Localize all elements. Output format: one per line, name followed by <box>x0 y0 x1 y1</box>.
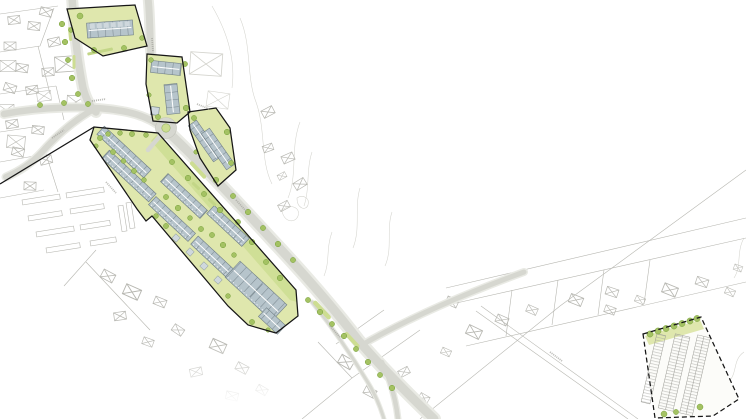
site-plan-map <box>0 0 746 419</box>
tree <box>277 275 283 281</box>
parking-bush <box>687 318 693 324</box>
tree <box>201 191 206 196</box>
tree <box>154 214 159 219</box>
tree <box>142 178 147 183</box>
street-tree <box>275 241 281 247</box>
tree <box>97 135 102 140</box>
tree <box>131 168 136 173</box>
tree <box>110 149 115 154</box>
tree <box>121 159 126 164</box>
street-tree <box>305 297 310 302</box>
tree <box>75 91 80 96</box>
tree <box>144 133 149 138</box>
tree <box>106 132 111 137</box>
tree <box>149 58 154 63</box>
tree <box>65 57 70 62</box>
tree <box>232 253 237 258</box>
median-island <box>73 55 76 69</box>
tree <box>69 75 75 81</box>
tree <box>37 102 42 107</box>
tree <box>188 216 193 221</box>
parking-bush <box>661 411 667 417</box>
tree <box>183 105 189 111</box>
tree <box>155 114 160 119</box>
street-tree <box>230 193 235 198</box>
tree <box>263 259 268 264</box>
parking-bush <box>697 404 703 410</box>
tree <box>228 160 233 165</box>
street-tree <box>290 257 295 262</box>
tree <box>61 100 66 105</box>
tree <box>224 129 230 135</box>
street-tree <box>341 333 347 339</box>
new-building-north-slab <box>87 20 134 38</box>
tree <box>226 294 231 299</box>
site-plan-svg <box>0 0 746 419</box>
tree <box>62 39 68 45</box>
tree <box>175 205 181 211</box>
tree <box>209 232 214 237</box>
tree <box>249 319 254 324</box>
tree <box>118 131 123 136</box>
tree <box>163 223 168 228</box>
tree <box>220 242 226 248</box>
roundabout-island <box>162 124 170 132</box>
map-fade-overlay <box>0 340 300 419</box>
tree <box>121 45 126 50</box>
tree <box>191 115 196 120</box>
tree <box>129 131 134 136</box>
parking-bush <box>673 409 678 414</box>
tree <box>198 226 203 231</box>
street-tree <box>377 372 382 377</box>
tree <box>169 159 174 164</box>
street-tree <box>260 225 265 230</box>
tree <box>59 21 65 27</box>
street-tree <box>365 359 371 365</box>
tree <box>77 13 83 19</box>
new-building-east-b <box>164 83 180 114</box>
street-tree <box>389 385 395 391</box>
street-tree <box>317 309 323 315</box>
tree <box>185 175 191 181</box>
tree <box>163 194 168 199</box>
tree <box>217 207 223 213</box>
tree <box>85 101 90 106</box>
street-tree <box>329 321 334 326</box>
street-tree <box>353 346 358 351</box>
